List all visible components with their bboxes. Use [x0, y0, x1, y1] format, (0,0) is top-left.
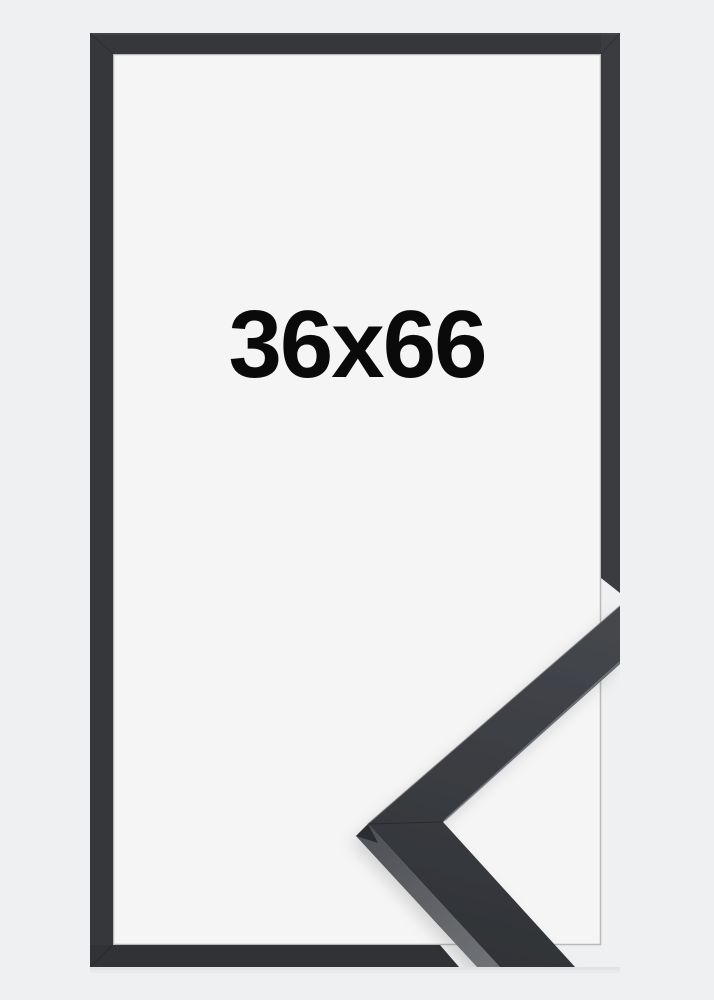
frame-border-top [90, 33, 620, 54]
picture-frame [90, 33, 620, 973]
frame-border-bottom [90, 945, 459, 967]
frame-drop-shadow-soft [90, 970, 620, 973]
frame-size-label: 36x66 [113, 297, 601, 393]
product-photo: 36x66 [0, 0, 714, 1000]
frame-backing [113, 54, 601, 945]
frame-drop-shadow [90, 967, 620, 970]
frame-border-right [601, 33, 620, 593]
frame-border-left [90, 33, 113, 967]
frame-visual [0, 0, 714, 1000]
